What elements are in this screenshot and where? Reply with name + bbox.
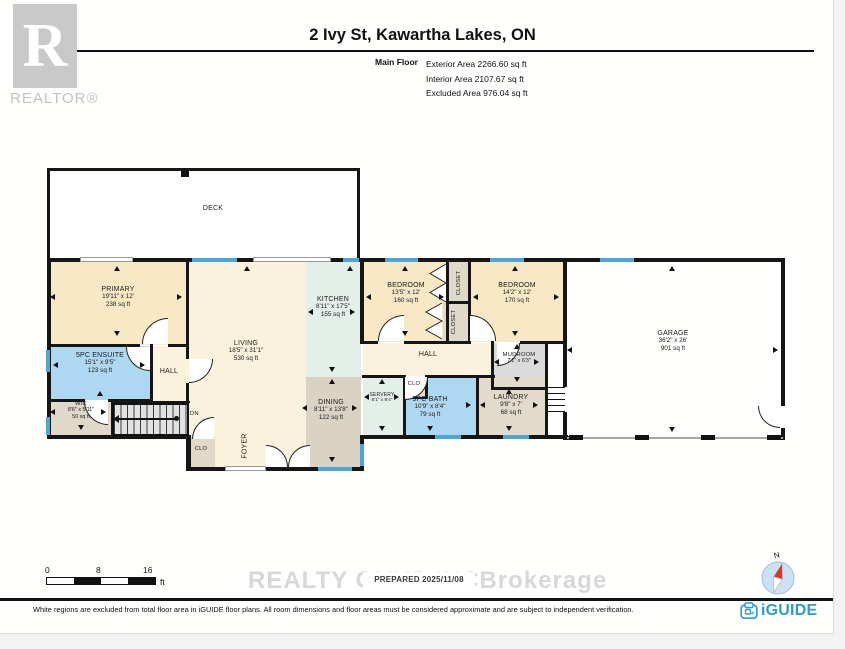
room-label-bedroom2: BEDROOM 14'2" x 12' 170 sq ft xyxy=(462,282,572,305)
disclaimer-text: White regions are excluded from total fl… xyxy=(33,605,673,614)
room-name: CLO xyxy=(146,446,256,452)
dimension-arrow-icon xyxy=(347,266,353,271)
wall-segment xyxy=(362,341,378,344)
room-fill-clo-foyer xyxy=(189,437,215,468)
window xyxy=(490,258,524,262)
header-divider xyxy=(28,50,814,52)
room-dims: 8'11" x 13'8" xyxy=(276,406,386,414)
dimension-arrow-icon xyxy=(506,426,512,431)
room-name: BEDROOM xyxy=(351,282,461,289)
page-title: 2 Ivy St, Kawartha Lakes, ON xyxy=(0,26,845,45)
room-name: LIVING xyxy=(191,340,301,347)
garage-door-post xyxy=(635,435,649,440)
room-label-living: LIVING 18'5" x 31'1" 530 sq ft xyxy=(191,340,301,363)
room-area: 155 sq ft xyxy=(278,311,388,319)
compass-icon: N xyxy=(755,548,801,605)
scale-segment xyxy=(47,578,74,584)
dimension-arrow-icon xyxy=(669,266,675,271)
window xyxy=(80,257,133,262)
room-label-deck: DECK xyxy=(158,205,268,212)
dimension-arrow-icon xyxy=(244,266,250,271)
dimension-arrow-icon xyxy=(514,344,520,349)
scale-segment xyxy=(74,578,101,584)
room-area: 68 sq ft xyxy=(456,409,566,417)
room-dims: 15'1" x 9'5" xyxy=(45,359,155,367)
room-fill-dining xyxy=(306,377,361,468)
wall-segment xyxy=(545,341,548,390)
prepared-date: PREPARED 2025/11/08 xyxy=(363,572,475,588)
scale-segment xyxy=(128,578,155,584)
room-name: CLOSET xyxy=(451,292,457,352)
interior-area: Interior Area 2107.67 sq ft xyxy=(426,72,528,87)
room-name: DN xyxy=(190,411,210,417)
window xyxy=(343,258,359,262)
window xyxy=(503,435,529,439)
dimension-arrow-icon xyxy=(329,457,335,462)
watermark-right: Brokerage xyxy=(479,567,607,595)
room-label-closet-b: CLOSET xyxy=(451,292,457,352)
room-name: 5PC ENSUITE xyxy=(45,352,155,359)
footer-divider xyxy=(0,598,833,601)
compass-north-label: N xyxy=(773,550,781,560)
dimension-arrow-icon xyxy=(177,294,182,300)
room-name: PRIMARY xyxy=(63,286,173,293)
wall-segment xyxy=(520,341,567,344)
wall-segment xyxy=(186,258,189,347)
dimension-arrow-icon xyxy=(114,266,120,271)
floorplan-sheet: R REALTOR® 2 Ivy St, Kawartha Lakes, ON … xyxy=(0,0,834,634)
dimension-arrow-icon xyxy=(78,425,84,430)
room-area: 160 sq ft xyxy=(351,297,461,305)
deck-outline xyxy=(47,168,360,262)
scale-bar xyxy=(46,577,156,585)
room-label-clo-servery: CLO xyxy=(359,381,469,387)
room-area: 901 sq ft xyxy=(618,345,728,353)
garage-door-post xyxy=(569,435,583,440)
stairs-start-dot xyxy=(174,416,179,421)
dimension-arrow-icon xyxy=(512,331,518,336)
door-gap xyxy=(781,406,785,428)
room-name: LAUNDRY xyxy=(456,394,566,401)
dimension-arrow-icon xyxy=(379,426,385,431)
room-dims: 8'6" x 5'11" xyxy=(26,407,136,414)
wall-segment xyxy=(491,341,494,390)
wall-segment xyxy=(360,435,568,439)
room-dims: 18'5" x 31'1" xyxy=(191,347,301,355)
dimension-arrow-icon xyxy=(329,379,335,384)
room-area: 530 sq ft xyxy=(191,355,301,363)
window xyxy=(192,258,237,262)
room-dims: 36'2" x 26' xyxy=(618,337,728,345)
exterior-area: Exterior Area 2266.60 sq ft xyxy=(426,57,528,72)
room-name: CLO xyxy=(359,381,469,387)
realtor-logo-letter: R xyxy=(23,15,68,77)
wall-segment xyxy=(563,258,567,387)
dimension-arrow-icon xyxy=(427,426,433,431)
room-dims: 9'8" x 7' xyxy=(456,401,566,409)
scale-unit: ft xyxy=(160,577,165,587)
dimension-arrow-icon xyxy=(97,391,103,396)
room-label-primary: PRIMARY 19'11" x 12' 238 sq ft xyxy=(63,286,173,309)
dimension-arrow-icon xyxy=(773,347,778,353)
room-label-garage: GARAGE 36'2" x 26' 901 sq ft xyxy=(618,330,728,353)
room-area: 122 sq ft xyxy=(276,414,386,422)
room-name: BEDROOM xyxy=(462,282,572,289)
garage-door-post xyxy=(767,435,781,440)
window xyxy=(435,435,461,439)
door-arc xyxy=(758,406,780,428)
room-label-laundry: LAUNDRY 9'8" x 7' 68 sq ft xyxy=(456,394,566,417)
window xyxy=(385,258,418,262)
deck-post xyxy=(181,170,189,177)
dimension-arrow-icon xyxy=(512,266,518,271)
dimension-arrow-icon xyxy=(402,331,408,336)
dimension-arrow-icon xyxy=(514,377,520,382)
garage-door xyxy=(567,437,783,439)
wall-segment xyxy=(427,375,495,378)
scale-segment xyxy=(101,578,128,584)
room-name: DECK xyxy=(158,205,268,212)
garage-door-post xyxy=(701,435,715,440)
room-label-hall-small: HALL xyxy=(114,368,224,375)
room-area: 170 sq ft xyxy=(462,297,572,305)
wall-segment xyxy=(404,341,470,344)
dimension-arrow-icon xyxy=(329,367,335,372)
room-area: 238 sq ft xyxy=(63,301,173,309)
scale-tick: 0 xyxy=(45,565,50,575)
window xyxy=(318,467,352,471)
room-dims: 7'1" x 6'3" xyxy=(464,358,574,365)
room-label-wic: WIC 8'6" x 5'11" 50 sq ft xyxy=(26,401,136,421)
room-label-mudroom: MUDROOM 7'1" x 6'3" xyxy=(464,352,574,365)
wall-segment xyxy=(362,375,405,378)
dimension-arrow-icon xyxy=(50,294,55,300)
scale-tick: 8 xyxy=(96,565,101,575)
dimension-arrow-icon xyxy=(114,331,120,336)
excluded-area: Excluded Area 976.04 sq ft xyxy=(426,86,528,101)
window xyxy=(253,257,331,262)
realtor-logo-icon: R xyxy=(13,4,77,88)
wall-segment xyxy=(491,387,548,390)
room-dims: 13'5" x 12' xyxy=(351,289,461,297)
wall-segment xyxy=(186,347,189,359)
dimension-arrow-icon xyxy=(669,427,675,432)
room-name: HALL xyxy=(114,368,224,375)
room-name: GARAGE xyxy=(618,330,728,337)
room-dims: 19'11" x 12' xyxy=(63,293,173,301)
dimension-arrow-icon xyxy=(402,266,408,271)
stairs-dn-label: DN xyxy=(190,411,210,417)
room-label-bedroom1: BEDROOM 13'5" x 12' 160 sq ft xyxy=(351,282,461,305)
room-dims: 14'2" x 12' xyxy=(462,289,572,297)
window xyxy=(360,444,364,466)
room-area: 50 sq ft xyxy=(26,414,136,421)
window xyxy=(600,258,634,262)
realtor-logo-text: REALTOR® xyxy=(10,90,99,107)
floor-stats: Exterior Area 2266.60 sq ft Interior Are… xyxy=(426,57,528,101)
floor-label: Main Floor xyxy=(352,57,418,67)
room-label-clo-foyer: CLO xyxy=(146,446,256,452)
scale-tick: 16 xyxy=(143,565,152,575)
bifold-door xyxy=(424,303,442,339)
